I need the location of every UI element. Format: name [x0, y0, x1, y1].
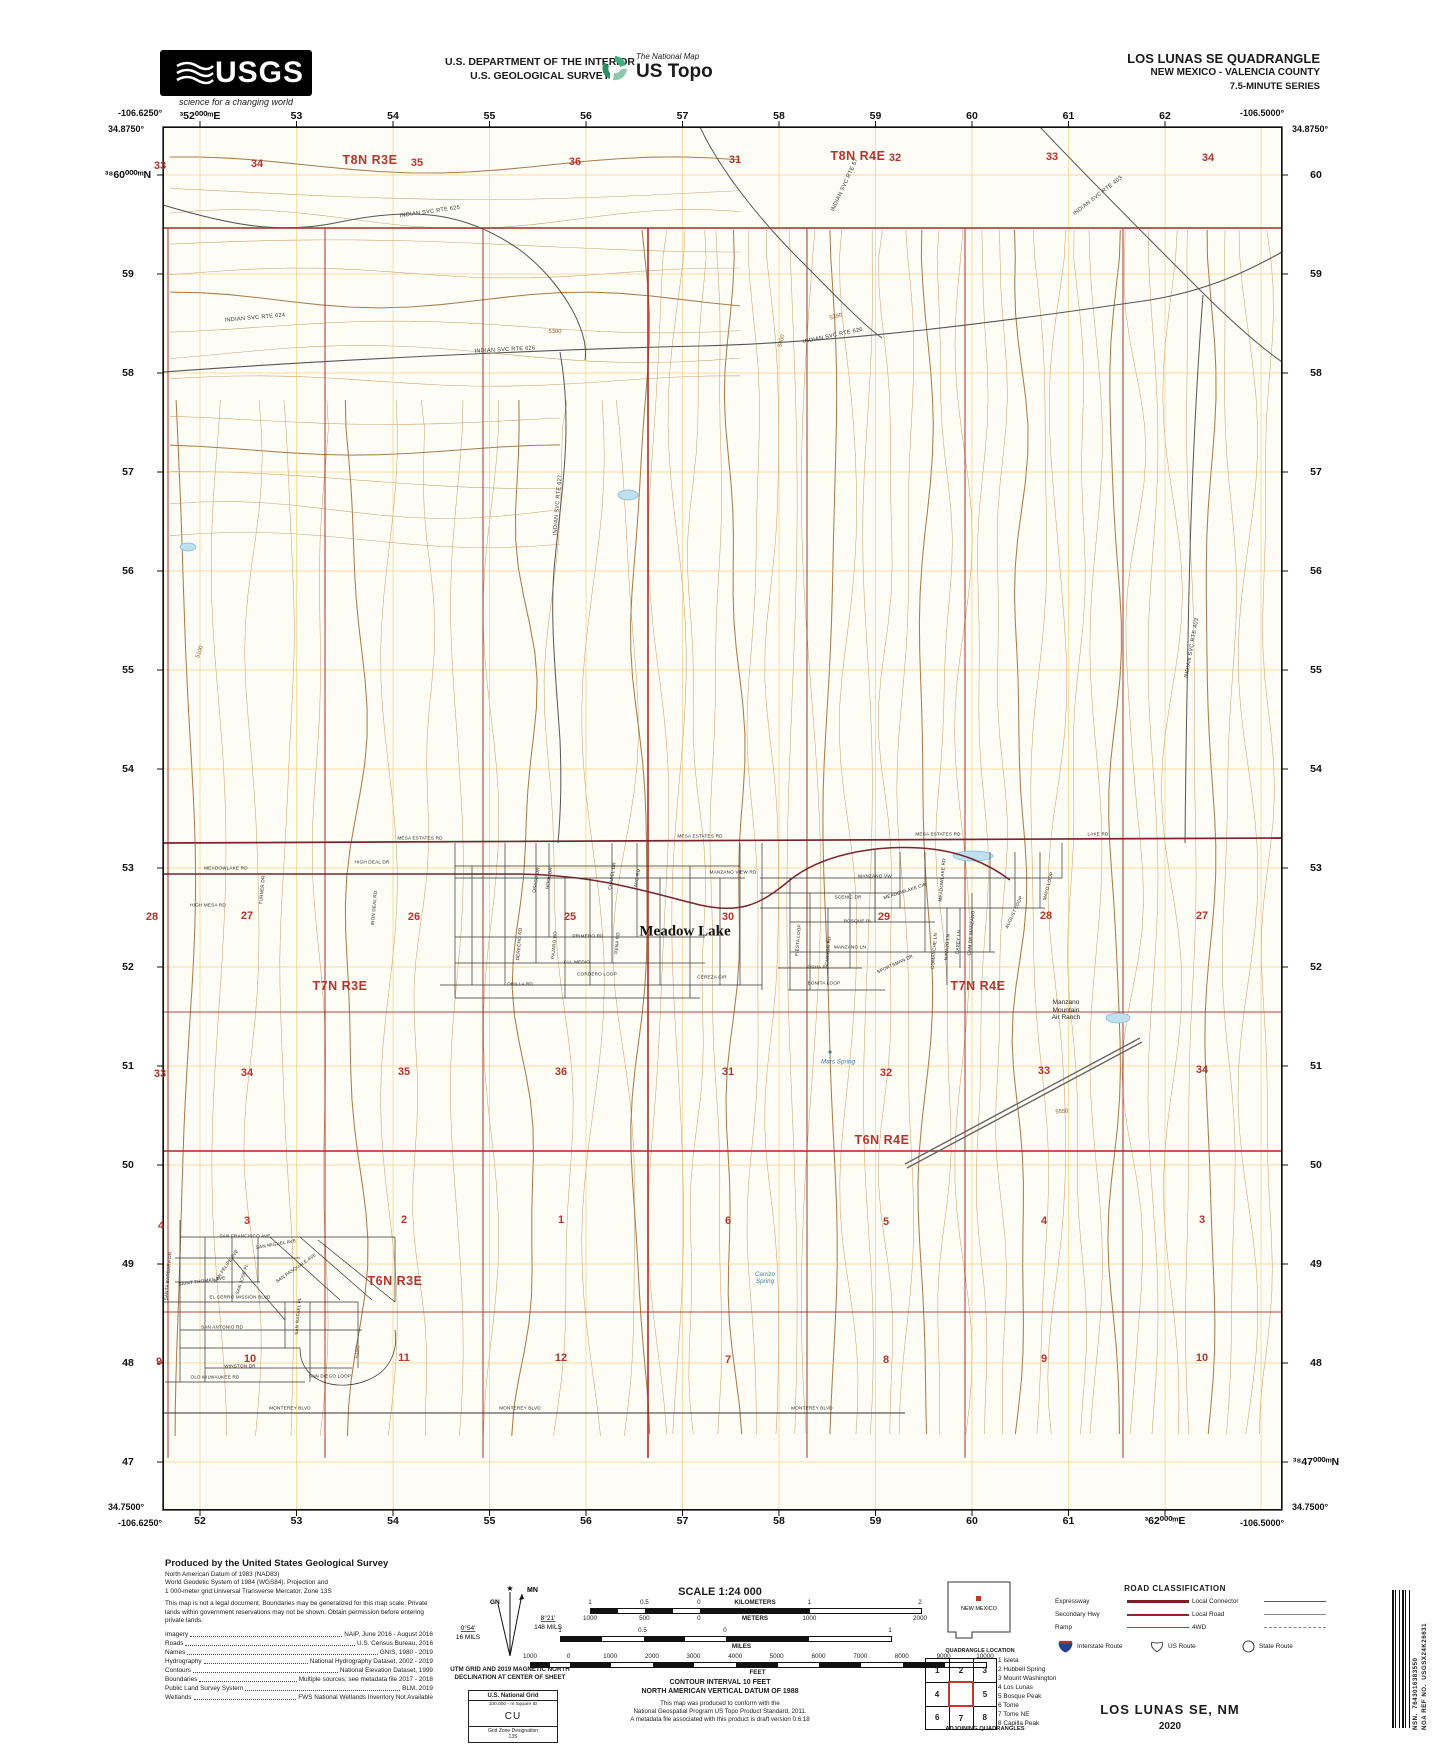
route-label: INDIAN SVC RTE 626 — [474, 345, 535, 354]
street-label: SPORTSMAN DR — [876, 953, 914, 974]
street-label: SAN DIEGO LOOP — [309, 1374, 351, 1379]
street-label: IRON DEAL RD — [370, 890, 378, 925]
grid-label-left: 49 — [122, 1258, 134, 1270]
street-label: MESA ESTATES RD — [397, 836, 442, 841]
adjoining-cell: 2 — [949, 1659, 973, 1683]
section-label: 35 — [398, 1066, 410, 1078]
conformance-line: A metadata file associated with this pro… — [545, 1716, 895, 1724]
map-name: LOS LUNAS SE, NM — [1040, 1702, 1300, 1717]
route-label: INDIAN SVC RTE 626 — [803, 327, 864, 346]
road-class-row: 4WD — [1192, 1624, 1326, 1631]
contour-label: 5550 — [1055, 1108, 1068, 1115]
section-label: 4 — [158, 1220, 164, 1232]
adjoining-cell: 3 — [973, 1659, 997, 1683]
grid-label-bottom: 55 — [484, 1515, 496, 1527]
street-label: WINSTON DR — [224, 1364, 256, 1369]
grid-label-right: 55 — [1310, 664, 1322, 676]
source-row: RoadsU.S. Census Bureau, 2016 — [165, 1639, 433, 1648]
usng-zone: 13S — [469, 1734, 557, 1740]
section-label: 6 — [725, 1215, 731, 1227]
map-identification: LOS LUNAS SE, NM 2020 — [1040, 1702, 1300, 1732]
grid-label-left: ³⁸60⁰⁰⁰ᵐN — [105, 169, 151, 181]
grid-label-right: 56 — [1310, 565, 1322, 577]
contour-label: 5300 — [549, 329, 562, 335]
corner-lat-bl: 34.7500° — [108, 1502, 144, 1512]
street-label: HIGH DEAL DR — [355, 860, 390, 865]
grid-label-bottom: 59 — [870, 1515, 882, 1527]
grid-label-right: 49 — [1310, 1258, 1322, 1270]
scale-tick: 6000 — [811, 1653, 825, 1660]
section-label: 2 — [401, 1214, 407, 1226]
ustopo-map-sheet: { "header": { "usgs_word": "USGS", "usgs… — [0, 0, 1445, 1746]
grid-label-right: 60 — [1310, 169, 1322, 181]
section-label: 9 — [1041, 1353, 1047, 1365]
street-label: MANZANO VIEW RD — [710, 870, 757, 875]
section-label: 34 — [251, 158, 263, 170]
section-label: 36 — [569, 156, 581, 168]
section-label: 7 — [725, 1354, 731, 1366]
grid-label-right: 51 — [1310, 1060, 1322, 1072]
svg-text:8°21': 8°21' — [541, 1614, 556, 1622]
contour-label: 5400 — [777, 334, 786, 348]
svg-text:NEW MEXICO: NEW MEXICO — [961, 1606, 998, 1612]
adjoining-cell: 1 — [926, 1659, 950, 1683]
section-label: 33 — [1046, 151, 1058, 163]
adjoining-cell: 4 — [926, 1682, 950, 1706]
township-label: T7N R3E — [313, 979, 368, 993]
street-label: BONITA LOOP — [808, 981, 841, 986]
scale-tick: 500 — [639, 1615, 650, 1622]
section-label: 10 — [244, 1353, 256, 1365]
adjoining-name: 5 Bosque Peak — [998, 1692, 1108, 1701]
township-label: T8N R3E — [343, 153, 398, 167]
street-label: LAKE RD — [1087, 832, 1108, 837]
street-label: MONTEREY BLVD — [791, 1406, 833, 1411]
adjoining-cell: 5 — [973, 1682, 997, 1706]
source-row: ImageryNAIP, June 2016 - August 2016 — [165, 1630, 433, 1639]
grid-label-top: 58 — [773, 110, 785, 122]
street-label: MONTEREY BLVD — [499, 1406, 541, 1411]
grid-label-left: 56 — [122, 565, 134, 577]
adjoining-name: 1 Isleta — [998, 1656, 1108, 1665]
adjoining-name: 2 Hubbell Spring — [998, 1665, 1108, 1674]
street-label: MAYO LOOP — [1042, 871, 1054, 900]
street-label: SAN PASQUALE AVE — [275, 1252, 317, 1284]
section-label: 27 — [1196, 910, 1208, 922]
section-label: 33 — [154, 160, 166, 172]
street-label: NAVAJO LN — [943, 934, 950, 961]
corner-lat-br: 34.7500° — [1292, 1502, 1328, 1512]
township-label: T7N R4E — [951, 979, 1006, 993]
section-label: 34 — [1196, 1064, 1208, 1076]
section-label: 5 — [883, 1216, 889, 1228]
street-label: SAN JOSE PL — [235, 1263, 250, 1295]
section-label: 4 — [1041, 1215, 1047, 1227]
street-label: MEADOWLAKE RD — [938, 858, 947, 902]
grid-label-left: 59 — [122, 268, 134, 280]
grid-label-top: 55 — [484, 110, 496, 122]
svg-text:MN: MN — [527, 1587, 538, 1594]
scale-tick: KILOMETERS — [734, 1599, 775, 1606]
section-label: 31 — [729, 154, 741, 166]
street-label: FIESTA LOOP — [794, 924, 802, 956]
grid-label-left: 50 — [122, 1159, 134, 1171]
street-label: CASEY LN — [954, 930, 961, 955]
section-label: 28 — [1040, 910, 1052, 922]
grid-label-right: 50 — [1310, 1159, 1322, 1171]
grid-label-top: ³52⁰⁰⁰ᵐE — [180, 110, 221, 122]
route-label: INDIAN SVC RTE 403 — [1184, 617, 1200, 678]
section-label: 32 — [889, 152, 901, 164]
street-label: CORDERO LOOP — [577, 972, 617, 977]
scale-tick: 1000 — [523, 1653, 537, 1660]
source-row: NamesGNIS, 1980 - 2019 — [165, 1648, 433, 1657]
road-class-row: Ramp — [1055, 1624, 1189, 1631]
street-label: CHAPEL DR — [607, 862, 617, 890]
township-label: T6N R3E — [368, 1274, 423, 1288]
usng-sub: 100,000 - m Square ID — [469, 1702, 557, 1707]
corner-lat-tl: 34.8750° — [108, 124, 144, 134]
section-label: 35 — [411, 157, 423, 169]
adjoining-name: 3 Mount Washington — [998, 1674, 1108, 1683]
scale-tick: 7000 — [853, 1653, 867, 1660]
adjoining-cell — [949, 1682, 973, 1706]
grid-label-top: 62 — [1159, 110, 1171, 122]
street-label: OSAGE DR — [531, 867, 540, 893]
street-label: SCENIC DR — [834, 895, 861, 900]
datum-lines: North American Datum of 1983 (NAD83)Worl… — [165, 1571, 433, 1596]
svg-text:GN: GN — [490, 1599, 500, 1606]
grid-label-left: 57 — [122, 466, 134, 478]
grid-label-left: 47 — [122, 1456, 134, 1468]
grid-label-top: 54 — [387, 110, 399, 122]
section-label: 27 — [241, 910, 253, 922]
source-row: BoundariesMultiple sources; see metadata… — [165, 1675, 433, 1684]
interstate-shield: Interstate Route — [1058, 1640, 1122, 1653]
street-label: SAN FELIPE AVE — [213, 1248, 240, 1283]
contour-label: 5100 — [195, 645, 205, 659]
road-class-row: Local Connector — [1192, 1598, 1326, 1605]
vertical-datum: NORTH AMERICAN VERTICAL DATUM OF 1988 — [560, 1687, 880, 1696]
scale-bar — [530, 1662, 987, 1668]
grid-label-right: ³⁸47⁰⁰⁰ᵐN — [1293, 1456, 1339, 1468]
quadrangle-location-caption: QUADRANGLE LOCATION — [930, 1648, 1030, 1654]
street-label: CANYON RD — [824, 936, 832, 966]
street-label: HOOL DR — [545, 867, 554, 890]
street-label: OSHA PL — [807, 965, 828, 970]
nga-ref-text: NGA REF NO. USGSX24K26631 — [1421, 1590, 1428, 1730]
scale-tick: 1000 — [802, 1615, 816, 1622]
usng-title: U.S. National Grid — [469, 1693, 557, 1701]
section-label: 25 — [564, 911, 576, 923]
conformance-note: This map was produced to conform with th… — [545, 1700, 895, 1724]
street-label: CAM DE MANZANO — [967, 910, 976, 955]
grid-label-top: 60 — [966, 110, 978, 122]
nsn-text: NSN. 7643016383550 — [1412, 1590, 1419, 1730]
contour-interval: CONTOUR INTERVAL 10 FEET — [560, 1678, 880, 1687]
datum-line: World Geodetic System of 1984 (WGS84). P… — [165, 1579, 433, 1587]
contour-note: CONTOUR INTERVAL 10 FEET NORTH AMERICAN … — [560, 1678, 880, 1696]
corner-lon-br: -106.5000° — [1240, 1518, 1284, 1528]
route-label: INDIAN SVC RTE 624 — [224, 312, 285, 323]
scale-tick: 1 — [888, 1627, 892, 1634]
section-label: 34 — [241, 1067, 253, 1079]
scale-tick: MILES — [732, 1643, 751, 1650]
section-label: 11 — [398, 1352, 410, 1364]
state-shield: State Route — [1242, 1640, 1293, 1653]
section-label: 32 — [880, 1067, 892, 1079]
street-label: DERECHO RD — [515, 927, 523, 960]
street-label: SAN ANTONIO RD — [201, 1325, 243, 1330]
grid-label-right: 52 — [1310, 961, 1322, 973]
datum-line: 1 000-meter grid:Universal Transverse Me… — [165, 1588, 433, 1596]
route-label: INDIAN SVC RTE 403 — [1072, 175, 1124, 217]
street-label: MANZANO VW — [858, 874, 892, 879]
street-label: TURNER DR — [258, 875, 265, 904]
street-label: BOSQUE PL — [844, 919, 872, 924]
street-label: AUGUST LOOP — [1004, 895, 1023, 929]
corner-lon-tr: -106.5000° — [1240, 108, 1284, 118]
route-label: INDIAN SVC RTE 625 — [399, 205, 460, 219]
scale-tick: 1 — [588, 1599, 592, 1606]
place-label: Meadow Lake — [639, 924, 730, 941]
grid-label-bottom: ³62⁰⁰⁰ᵐE — [1145, 1515, 1186, 1527]
section-label: 1 — [558, 1214, 564, 1226]
section-label: 34 — [1202, 152, 1214, 164]
section-label: 3 — [244, 1215, 250, 1227]
scale-tick: 1 — [808, 1599, 812, 1606]
scale-title: SCALE 1:24 000 — [560, 1586, 880, 1598]
section-label: 29 — [878, 911, 890, 923]
section-label: 36 — [555, 1066, 567, 1078]
section-label: 9 — [156, 1356, 162, 1368]
grid-label-left: 51 — [122, 1060, 134, 1072]
grid-label-right: 58 — [1310, 367, 1322, 379]
place-label: Manzano Mountain Air Ranch — [1052, 999, 1081, 1022]
corner-lat-tr: 34.8750° — [1292, 124, 1328, 134]
source-row: Public Land Survey SystemBLM, 2019 — [165, 1684, 433, 1693]
source-row: WetlandsFWS National Wetlands Inventory … — [165, 1693, 433, 1702]
street-label: CEREZA CIR — [697, 975, 727, 980]
scale-tick: FEET — [749, 1669, 765, 1676]
svg-text:16 MILS: 16 MILS — [456, 1634, 481, 1641]
grid-label-bottom: 61 — [1063, 1515, 1075, 1527]
scale-tick: 1000 — [603, 1653, 617, 1660]
grid-label-top: 53 — [291, 110, 303, 122]
source-row: HydrographyNational Hydrography Dataset,… — [165, 1657, 433, 1666]
grid-label-right: 53 — [1310, 862, 1322, 874]
road-class-row: Local Road — [1192, 1611, 1326, 1618]
street-label: OLD MILWAUKEE RD — [191, 1375, 240, 1380]
street-label: MONTEREY BLVD — [269, 1406, 311, 1411]
street-label: CLL MEDIO — [564, 960, 590, 965]
scale-tick: 8000 — [895, 1653, 909, 1660]
scale-tick: 0 — [697, 1615, 701, 1622]
conformance-line: National Geospatial Program US Topo Prod… — [545, 1708, 895, 1716]
scale-bar — [590, 1608, 922, 1614]
scale-tick: 5000 — [770, 1653, 784, 1660]
grid-label-top: 56 — [580, 110, 592, 122]
grid-label-bottom: 57 — [677, 1515, 689, 1527]
source-row: ContoursNational Elevation Dataset, 1999 — [165, 1666, 433, 1675]
scale-tick: 1 — [558, 1627, 562, 1634]
section-label: 12 — [555, 1352, 567, 1364]
legal-text: This map is not a legal document. Bounda… — [165, 1600, 433, 1625]
street-label: AVO RD — [633, 868, 641, 887]
section-label: 26 — [408, 911, 420, 923]
section-label: 30 — [722, 911, 734, 923]
road-class-row: Expressway — [1055, 1598, 1189, 1605]
section-label: 8 — [883, 1354, 889, 1366]
road-classification-title: ROAD CLASSIFICATION — [1075, 1584, 1275, 1593]
road-class-row: Secondary Hwy — [1055, 1611, 1189, 1618]
section-label: 33 — [154, 1068, 166, 1080]
grid-label-right: 59 — [1310, 268, 1322, 280]
street-label: SAINT THOMAS AVE — [178, 1275, 226, 1287]
section-label: 31 — [722, 1066, 734, 1078]
adjoining-grid: 12345678 — [925, 1658, 997, 1730]
produced-by-block: Produced by the United States Geological… — [165, 1558, 433, 1702]
street-label: COMANCHE LN — [930, 933, 938, 969]
scale-tick: 1000 — [583, 1615, 597, 1622]
street-label: PAJARO RD — [550, 931, 557, 959]
route-label: INDIAN SVC RTE 627 — [552, 474, 563, 535]
produced-title: Produced by the United States Geological… — [165, 1558, 433, 1569]
scale-tick: 0 — [723, 1627, 727, 1634]
map-year: 2020 — [1040, 1721, 1300, 1732]
us-shield: US Route — [1150, 1640, 1196, 1653]
section-label: 3 — [1199, 1214, 1205, 1226]
township-label: T6N R4E — [855, 1133, 910, 1147]
scale-tick: 4000 — [728, 1653, 742, 1660]
street-label: ORILLA RD — [507, 982, 533, 987]
map-label-layer: T8N R3ET8N R4ET7N R3ET7N R4ET6N R3ET6N R… — [0, 0, 1445, 1746]
adjoining-name: 4 Los Lunas — [998, 1683, 1108, 1692]
scale-tick: 2000 — [913, 1615, 927, 1622]
grid-label-top: 59 — [870, 110, 882, 122]
township-label: T8N R4E — [831, 149, 886, 163]
usng-zone-label: Grid Zone Designation — [469, 1726, 557, 1734]
scale-tick: METERS — [742, 1615, 768, 1622]
grid-label-left: 53 — [122, 862, 134, 874]
barcode — [1392, 1590, 1410, 1728]
street-label: SANTA BARBARA DR — [163, 1251, 172, 1300]
scale-tick: 2000 — [645, 1653, 659, 1660]
grid-label-left: 48 — [122, 1357, 134, 1369]
street-label: MESA ESTATES RD — [677, 834, 722, 839]
grid-label-bottom: 54 — [387, 1515, 399, 1527]
street-label: PRIMERO RD — [572, 934, 603, 939]
grid-label-left: 52 — [122, 961, 134, 973]
section-label: 28 — [146, 911, 158, 923]
street-label: EL CERRO MISSION BLVD — [209, 1295, 270, 1300]
route-label: INDIAN SVC RTE 57 — [830, 158, 860, 213]
svg-text:★: ★ — [506, 1584, 513, 1593]
conformance-line: This map was produced to conform with th… — [545, 1700, 895, 1708]
contour-label: 5150 — [354, 1345, 361, 1358]
grid-label-right: 54 — [1310, 763, 1322, 775]
grid-label-top: 61 — [1063, 110, 1075, 122]
street-label: HIGH MESA RD — [190, 903, 226, 908]
corner-lon-bl: -106.6250° — [118, 1518, 162, 1528]
street-label: PENA RD — [614, 932, 621, 954]
street-label: MANZANO LN — [834, 945, 866, 950]
quad-location-marker — [976, 1596, 981, 1601]
usng-square-id: CU — [469, 1711, 557, 1722]
street-label: MEADOWLAKE RD — [204, 866, 247, 871]
svg-text:0°54': 0°54' — [461, 1624, 476, 1632]
section-label: 10 — [1196, 1352, 1208, 1364]
grid-label-right: 57 — [1310, 466, 1322, 478]
street-label: SAN RAFAEL PL — [294, 1297, 302, 1335]
grid-label-right: 48 — [1310, 1357, 1322, 1369]
scale-tick: 0 — [567, 1653, 571, 1660]
street-label: SAN MIGUEL AVE — [255, 1238, 296, 1250]
grid-label-left: 55 — [122, 664, 134, 676]
datum-line: North American Datum of 1983 (NAD83) — [165, 1571, 433, 1579]
scale-tick: 0.5 — [640, 1599, 649, 1606]
contour-label: 5350 — [829, 312, 843, 321]
grid-label-bottom: 53 — [291, 1515, 303, 1527]
grid-label-left: 54 — [122, 763, 134, 775]
scale-bar — [560, 1636, 892, 1642]
corner-lon-tl: -106.6250° — [118, 108, 162, 118]
source-rows: ImageryNAIP, June 2016 - August 2016Road… — [165, 1630, 433, 1702]
quadrangle-location-map: NEW MEXICO — [938, 1576, 1022, 1646]
street-label: SAN FRANCISCO AVE — [219, 1234, 270, 1239]
scale-tick: 3000 — [686, 1653, 700, 1660]
scale-tick: 0 — [697, 1599, 701, 1606]
scale-tick: 0.5 — [638, 1627, 647, 1634]
grid-label-bottom: 58 — [773, 1515, 785, 1527]
grid-label-left: 58 — [122, 367, 134, 379]
grid-label-top: 57 — [677, 110, 689, 122]
grid-label-bottom: 56 — [580, 1515, 592, 1527]
street-label: MEADOWLAKE CIR — [883, 882, 927, 901]
section-label: 33 — [1038, 1065, 1050, 1077]
grid-label-bottom: 60 — [966, 1515, 978, 1527]
water-label: Carrizo Spring — [755, 1271, 775, 1285]
street-label: MESA ESTATES RD — [915, 832, 960, 837]
grid-label-bottom: 52 — [194, 1515, 206, 1527]
scale-tick: 2 — [918, 1599, 922, 1606]
water-label: Mars Spring — [821, 1059, 855, 1066]
